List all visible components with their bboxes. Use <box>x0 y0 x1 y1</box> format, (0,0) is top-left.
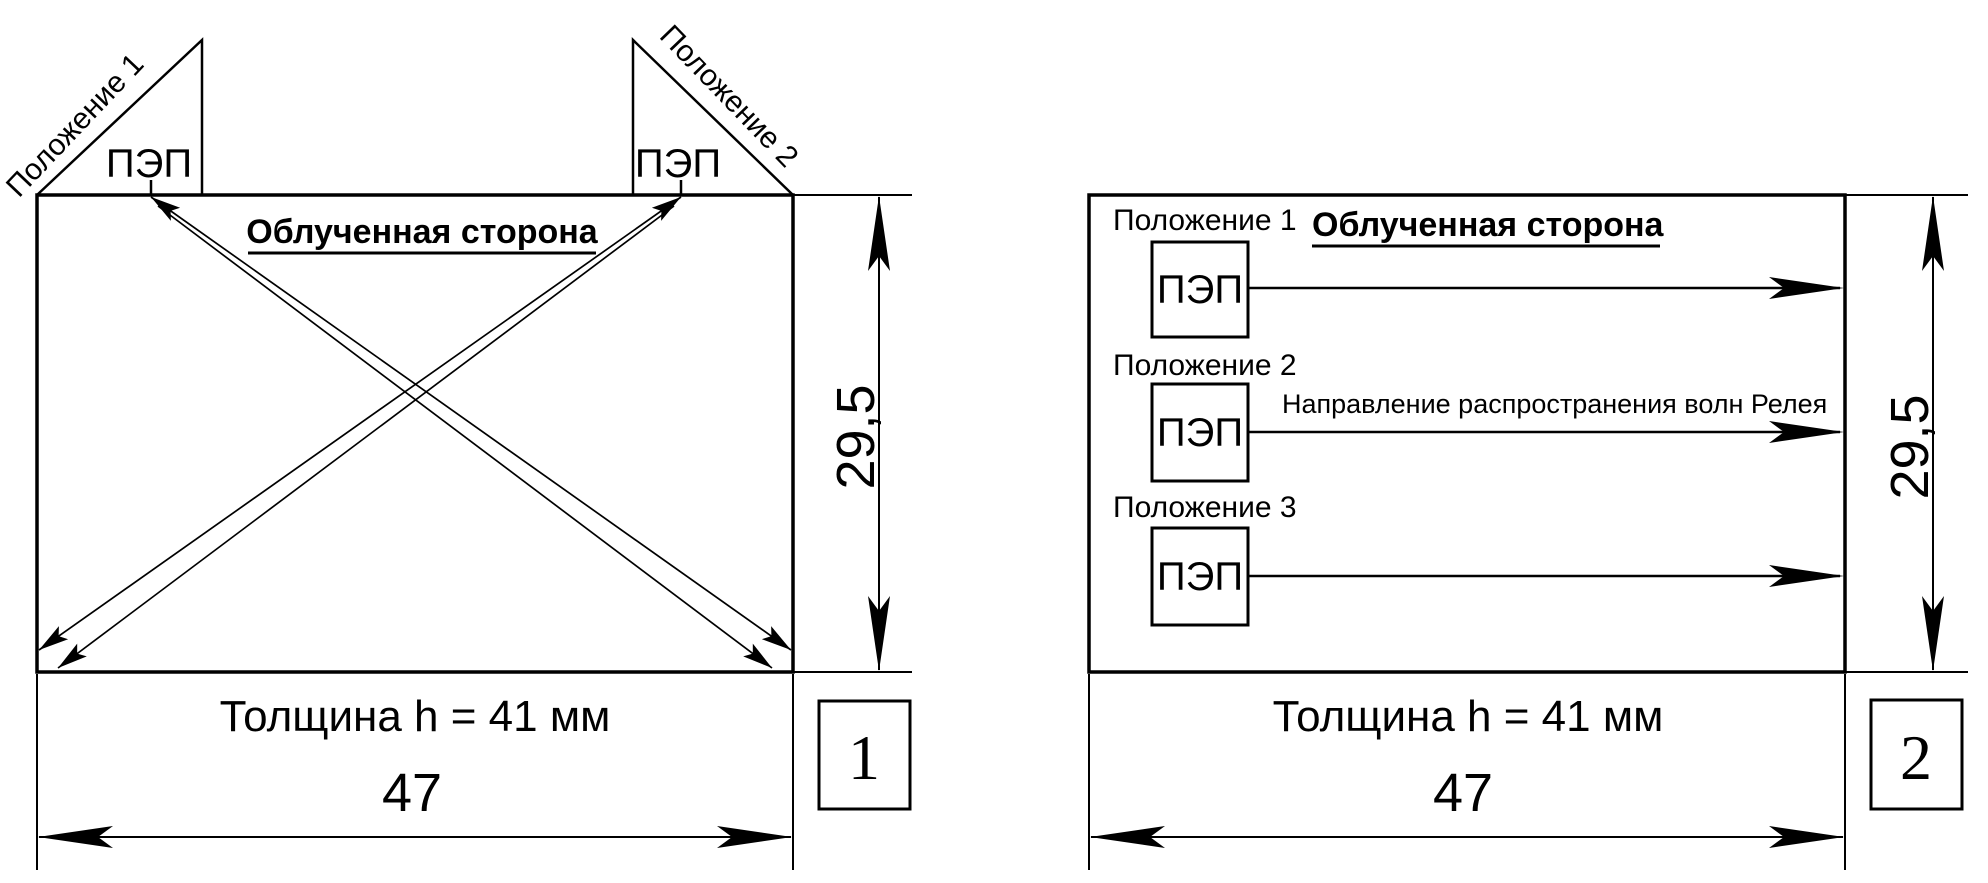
beam-path-line <box>158 206 772 668</box>
beam-arrowhead <box>743 644 777 675</box>
thickness-note-1: Толщина h = 41 мм <box>220 692 611 741</box>
figure-number-1: 1 <box>848 722 880 793</box>
transducer-label-p2: ПЭП <box>1157 411 1243 455</box>
beam-path-line <box>151 197 791 650</box>
transducer-label-p3: ПЭП <box>1157 555 1243 599</box>
ultrasonic-testing-scheme: Положение 1 Положение 2 ПЭП ПЭП Облученн… <box>0 0 1988 883</box>
transducer-label-p1: ПЭП <box>1157 268 1243 312</box>
height-dimension-value-2: 29,5 <box>1880 394 1940 499</box>
width-dimension-value-2: 47 <box>1433 763 1493 823</box>
figure-number-2: 2 <box>1900 722 1932 793</box>
technical-drawing-sheet: Положение 1 Положение 2 ПЭП ПЭП Облученн… <box>0 0 1988 883</box>
transducer-label-2: ПЭП <box>635 142 721 186</box>
beam-arrowhead <box>762 626 796 656</box>
beam-path-line <box>39 197 681 650</box>
position-1-label-2: Положение 1 <box>1113 204 1297 237</box>
irradiated-side-label-1: Облученная сторона <box>246 213 599 251</box>
position-2-label-2: Положение 2 <box>1113 349 1297 382</box>
rayleigh-direction-label: Направление распространения волн Релея <box>1282 389 1827 419</box>
width-dimension-value-1: 47 <box>382 763 442 823</box>
position-3-label-2: Положение 3 <box>1113 491 1297 524</box>
beam-arrowhead <box>34 626 68 656</box>
specimen-rect-1 <box>37 195 793 672</box>
thickness-note-2: Толщина h = 41 мм <box>1273 692 1664 741</box>
panel-1: Положение 1 Положение 2 ПЭП ПЭП Облученн… <box>0 19 912 870</box>
beam-path-line <box>58 206 674 668</box>
irradiated-side-label-2: Облученная сторона <box>1312 206 1665 244</box>
panel-2: Облученная сторона Положение 1 ПЭП Полож… <box>1089 195 1968 870</box>
height-dimension-value-1: 29,5 <box>826 384 886 489</box>
beam-arrowhead <box>53 644 87 675</box>
transducer-label-1: ПЭП <box>106 142 192 186</box>
